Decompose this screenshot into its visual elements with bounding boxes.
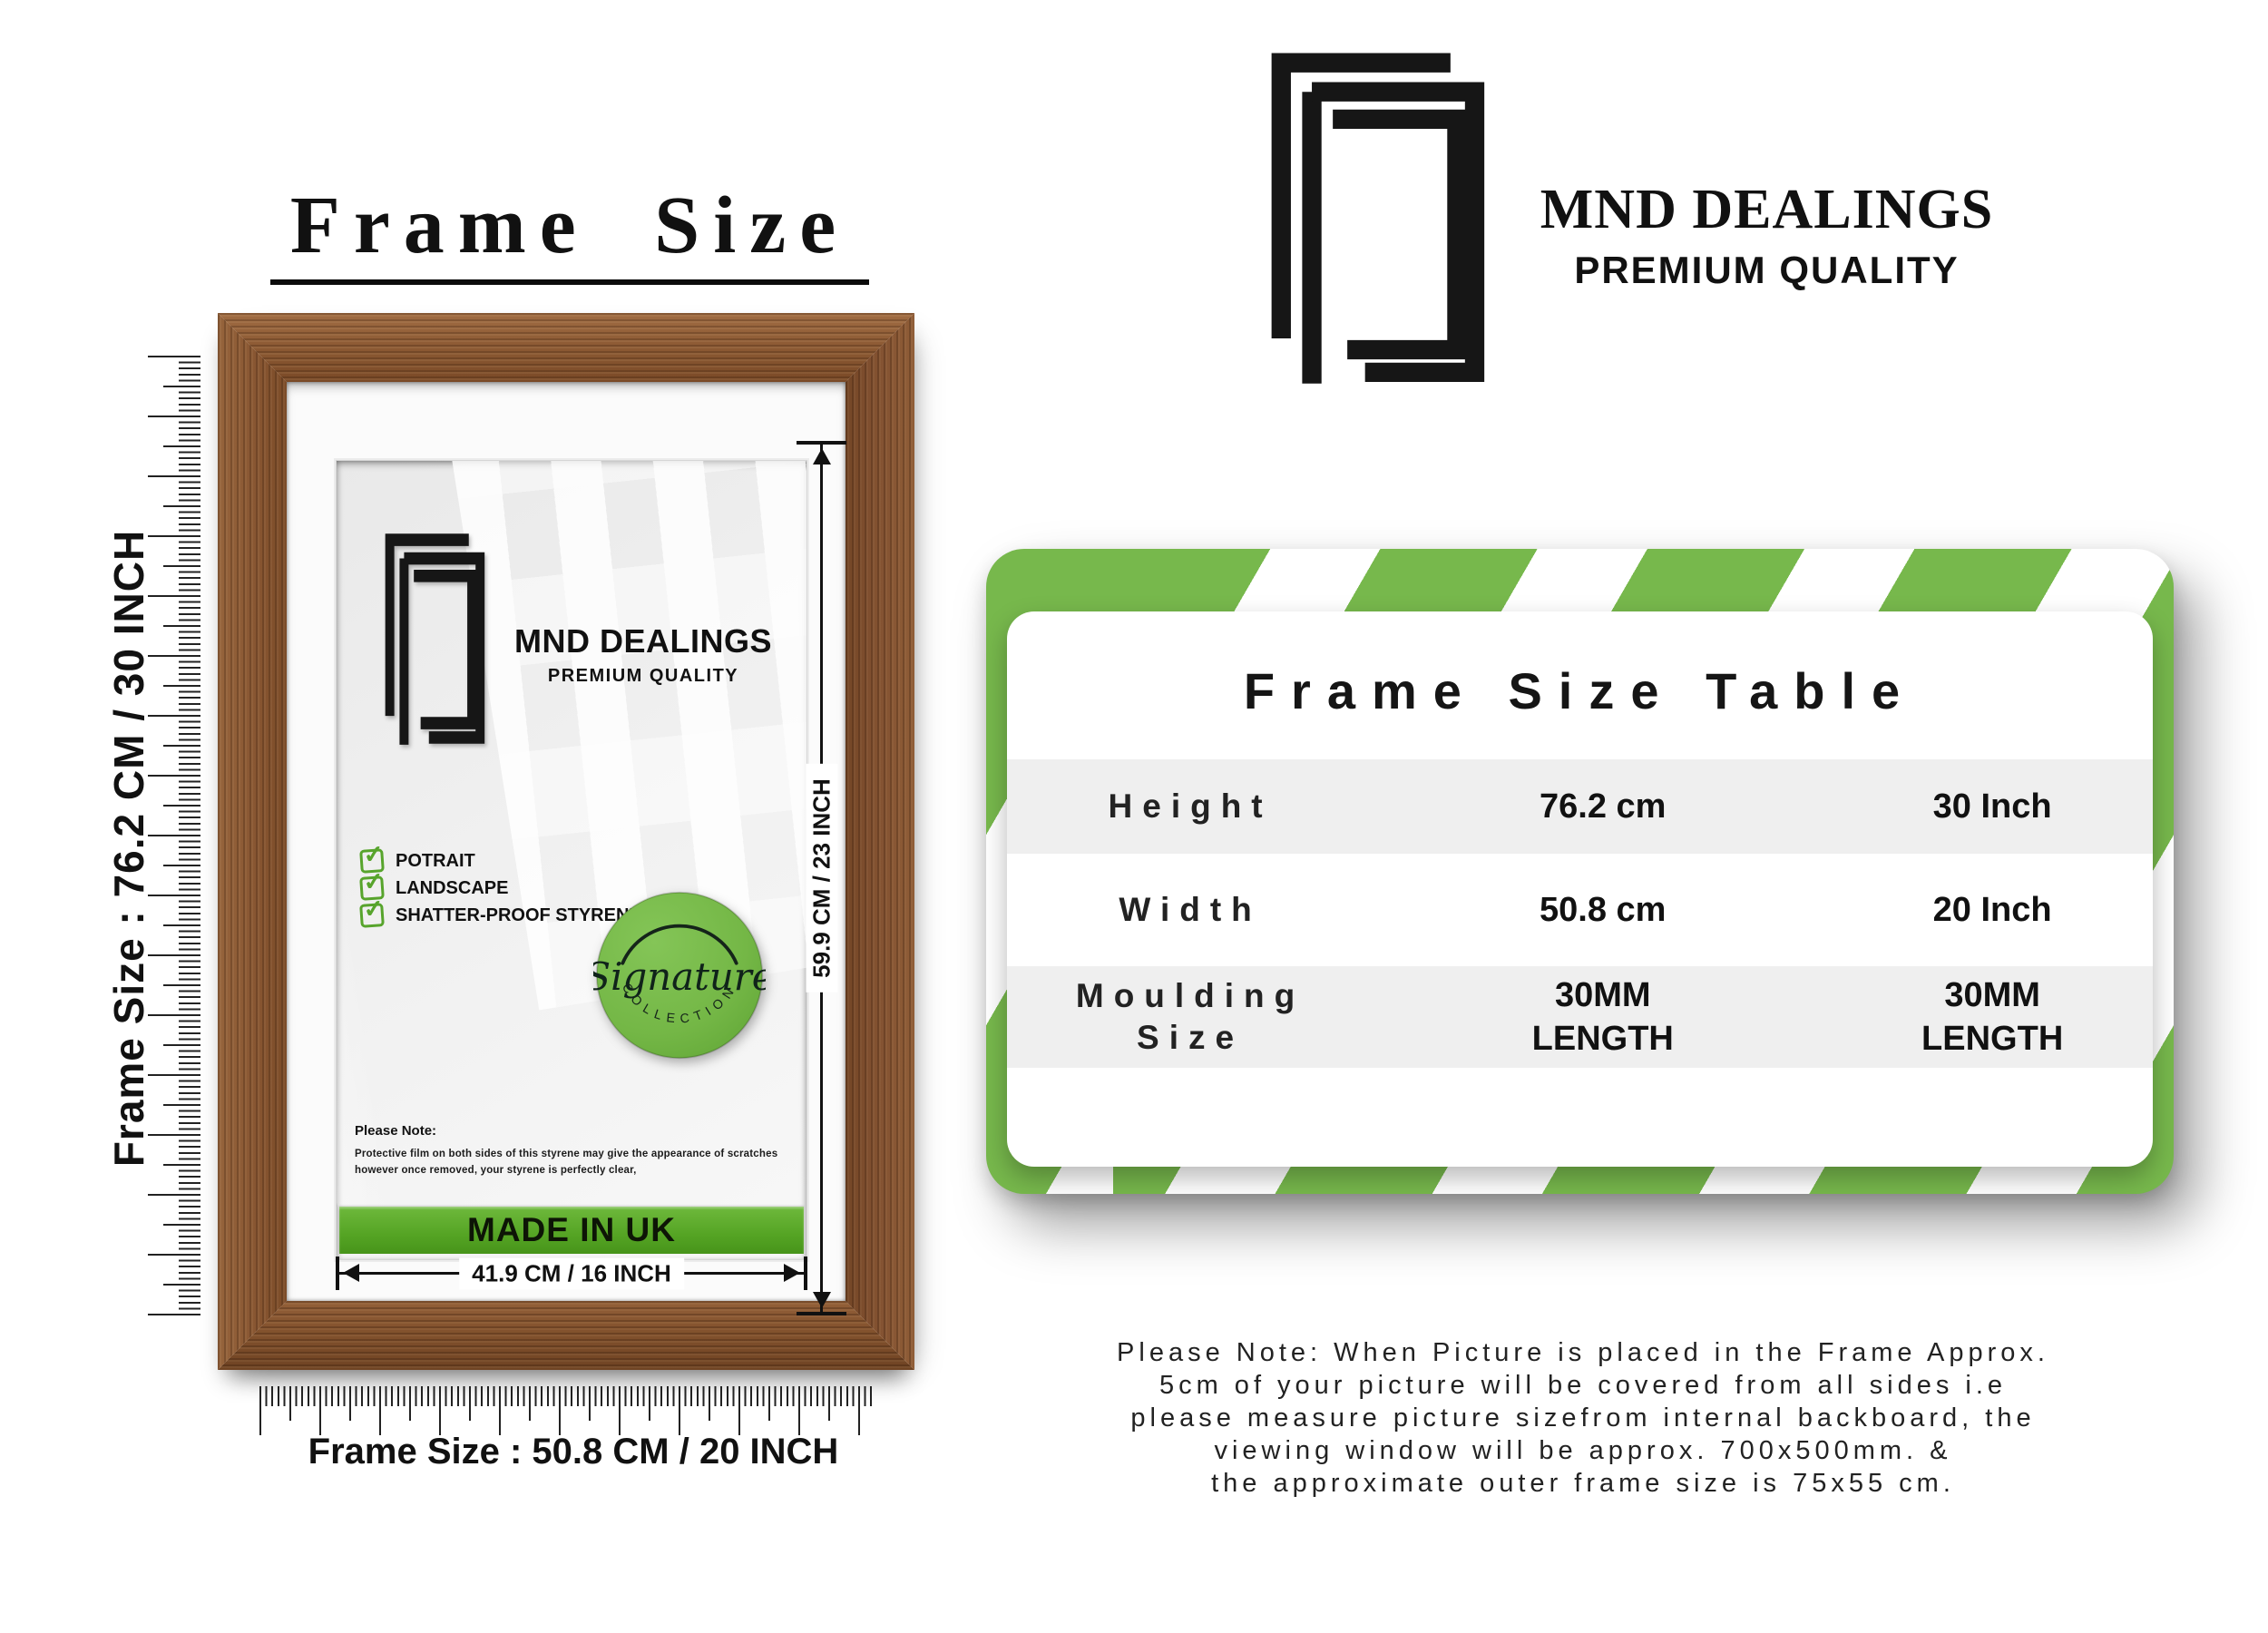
styrene-note: Please Note: Protective film on both sid… bbox=[355, 1123, 801, 1178]
footer-note-line: viewing window will be approx. 700x500mm… bbox=[962, 1434, 2204, 1467]
arrow-left-icon bbox=[343, 1264, 359, 1282]
note-body: Protective film on both sides of this st… bbox=[355, 1146, 801, 1178]
footer-note-line: 5cm of your picture will be covered from… bbox=[962, 1369, 2204, 1402]
row-cm-value: 76.2 cm bbox=[1374, 785, 1832, 828]
table-title: Frame Size Table bbox=[1007, 611, 2153, 759]
frame-size-card: Frame Size Table Height 76.2 cm 30 Inch … bbox=[986, 549, 2174, 1194]
ruler-ticks-dense bbox=[259, 1386, 873, 1406]
frame-moulding-right bbox=[846, 313, 914, 1370]
brand-logo-header bbox=[1264, 50, 1491, 401]
brand-tagline: PREMIUM QUALITY bbox=[507, 666, 779, 687]
row-inch-value: 30MM LENGTH bbox=[1832, 973, 2153, 1061]
table-row: Width 50.8 cm 20 Inch bbox=[1007, 854, 2153, 966]
note-heading: Please Note: bbox=[355, 1123, 801, 1139]
double-frame-logo-icon bbox=[1264, 50, 1491, 396]
made-in-uk-banner: MADE IN UK bbox=[339, 1207, 804, 1254]
frame-moulding-left bbox=[218, 313, 287, 1370]
signature-collection-badge: Signature COLLECTION bbox=[593, 889, 766, 1061]
row-cm-value: 50.8 cm bbox=[1374, 888, 1832, 932]
arrow-down-icon bbox=[813, 1292, 831, 1308]
frame-moulding-top bbox=[218, 313, 914, 382]
brand-tagline: PREMIUM QUALITY bbox=[1506, 249, 2028, 292]
page-title: Frame Size bbox=[270, 185, 869, 285]
inner-width-value: 41.9 CM / 16 INCH bbox=[459, 1257, 684, 1289]
footer-note: Please Note: When Picture is placed in t… bbox=[962, 1336, 2204, 1500]
row-label: Height bbox=[1007, 786, 1374, 827]
inner-height-value: 59.9 CM / 23 INCH bbox=[806, 764, 837, 993]
arrow-up-icon bbox=[813, 448, 831, 464]
arrow-right-icon bbox=[784, 1264, 800, 1282]
brand-logo-text: MND DEALINGS PREMIUM QUALITY bbox=[1506, 178, 2028, 292]
brand-logo-inner: MND DEALINGS PREMIUM QUALITY bbox=[384, 532, 779, 753]
row-inch-value: 30 Inch bbox=[1832, 785, 2153, 828]
row-cm-value: 30MM LENGTH bbox=[1374, 973, 1832, 1061]
list-item: ✓ POTRAIT bbox=[360, 850, 641, 872]
double-frame-logo-icon bbox=[384, 532, 485, 753]
brand-name: MND DEALINGS bbox=[1506, 178, 2028, 241]
brand-name: MND DEALINGS bbox=[507, 622, 779, 660]
checkbox-check-icon: ✓ bbox=[359, 903, 385, 928]
frame-height-label: Frame Size : 76.2 CM / 30 INCH bbox=[104, 530, 153, 1167]
row-label: Moulding Size bbox=[1007, 975, 1374, 1059]
footer-note-line: Please Note: When Picture is placed in t… bbox=[962, 1336, 2204, 1369]
row-inch-value: 20 Inch bbox=[1832, 888, 2153, 932]
frame-size-infographic: Frame Size Frame Size : 76.2 CM / 30 INC… bbox=[0, 0, 2268, 1633]
vertical-ruler bbox=[148, 356, 200, 1319]
inner-height-dimension-line: 59.9 CM / 23 INCH bbox=[820, 444, 823, 1313]
ruler-ticks-dense bbox=[179, 356, 200, 1319]
horizontal-ruler bbox=[259, 1386, 873, 1435]
row-label: Width bbox=[1007, 889, 1374, 931]
footer-note-line: the approximate outer frame size is 75x5… bbox=[962, 1467, 2204, 1500]
frame-styrene-window: MND DEALINGS PREMIUM QUALITY ✓ POTRAIT ✓… bbox=[336, 460, 807, 1260]
inner-width-dimension-line: 41.9 CM / 16 INCH bbox=[337, 1272, 806, 1275]
table-row: Moulding Size 30MM LENGTH 30MM LENGTH bbox=[1007, 966, 2153, 1068]
badge-script-text: Signature bbox=[593, 954, 766, 999]
frame-size-table: Frame Size Table Height 76.2 cm 30 Inch … bbox=[1007, 611, 2153, 1167]
frame-width-label: Frame Size : 50.8 CM / 20 INCH bbox=[238, 1432, 909, 1472]
table-row: Height 76.2 cm 30 Inch bbox=[1007, 759, 2153, 854]
footer-note-line: please measure picture sizefrom internal… bbox=[962, 1402, 2204, 1434]
